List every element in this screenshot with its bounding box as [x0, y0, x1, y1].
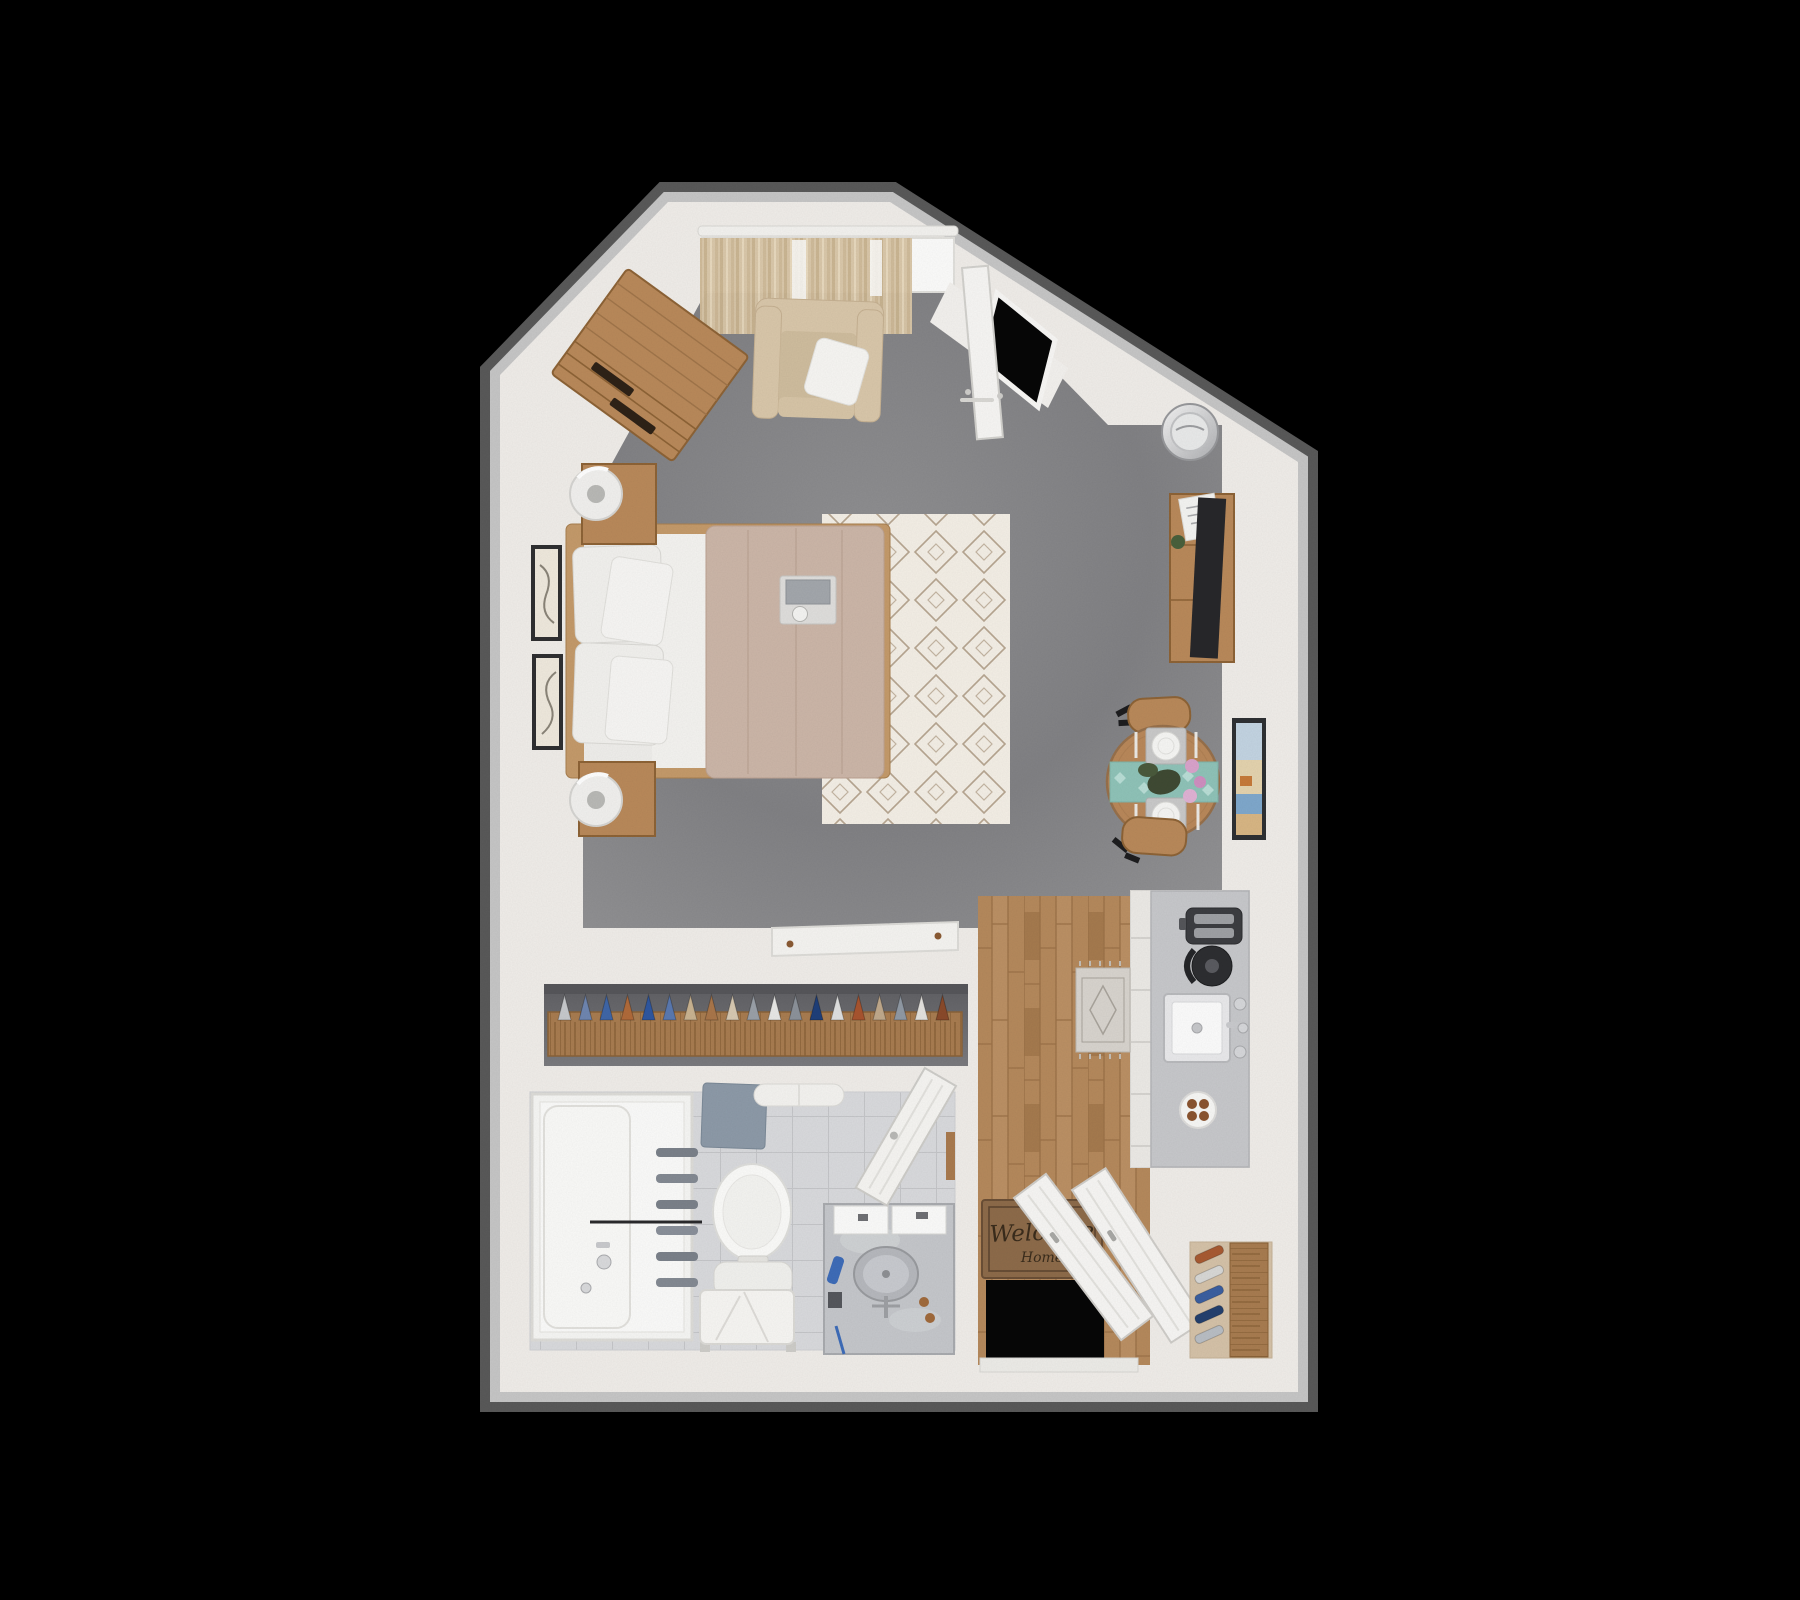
- texture-overlay: [430, 150, 1330, 1430]
- floor-plan-canvas: Welcome Home: [0, 0, 1800, 1600]
- floor-plan-svg: Welcome Home: [0, 0, 1800, 1600]
